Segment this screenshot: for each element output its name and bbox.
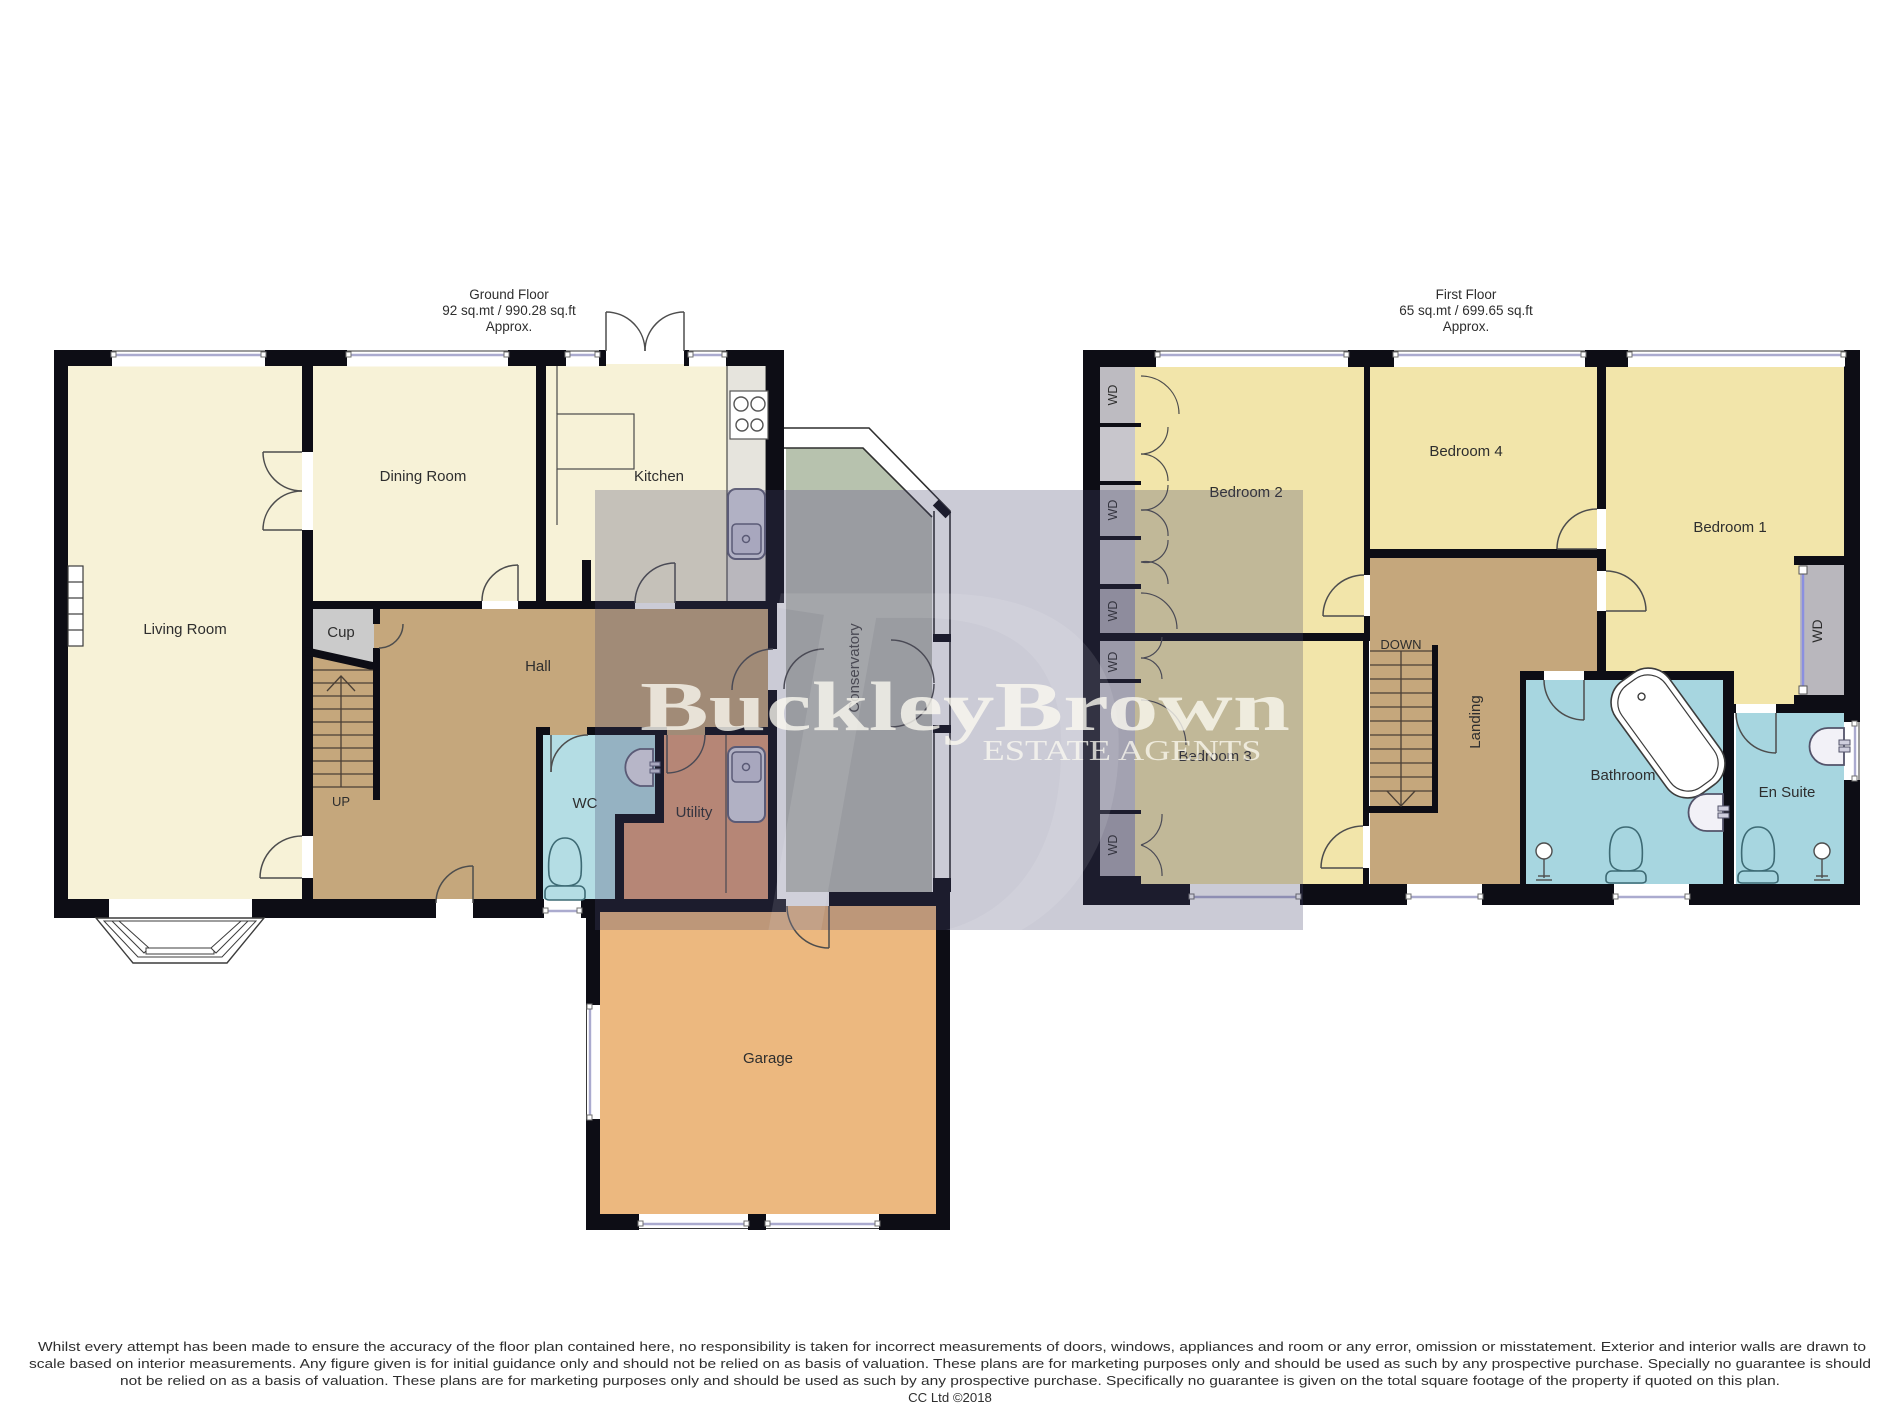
svg-text:Dining Room: Dining Room: [380, 468, 467, 485]
svg-text:Garage: Garage: [743, 1050, 793, 1067]
svg-text:First Floor: First Floor: [1436, 287, 1497, 302]
svg-text:ESTATE AGENTS: ESTATE AGENTS: [983, 736, 1262, 767]
svg-text:Bathroom: Bathroom: [1590, 767, 1655, 784]
svg-text:Whilst every attempt has been: Whilst every attempt has been made to en…: [38, 1339, 1866, 1354]
svg-text:BuckleyBrown: BuckleyBrown: [640, 669, 1290, 746]
svg-text:WC: WC: [573, 795, 598, 812]
svg-text:not be relied on as a basis of: not be relied on as a basis of valuation…: [120, 1373, 1780, 1388]
svg-text:UP: UP: [332, 794, 350, 809]
svg-text:Landing: Landing: [1467, 695, 1484, 748]
svg-text:Cup: Cup: [327, 624, 355, 641]
svg-text:CC Ltd ©2018: CC Ltd ©2018: [908, 1390, 992, 1405]
svg-text:WD: WD: [1106, 385, 1120, 406]
svg-text:92 sq.mt / 990.28 sq.ft: 92 sq.mt / 990.28 sq.ft: [442, 303, 576, 318]
svg-text:Approx.: Approx.: [1443, 319, 1490, 334]
svg-text:Bedroom 1: Bedroom 1: [1693, 519, 1766, 536]
svg-text:Living Room: Living Room: [143, 621, 226, 638]
svg-text:scale based on interior measur: scale based on interior measurements. An…: [29, 1356, 1871, 1371]
svg-text:65 sq.mt / 699.65 sq.ft: 65 sq.mt / 699.65 sq.ft: [1399, 303, 1533, 318]
svg-text:Hall: Hall: [525, 658, 551, 675]
svg-text:DOWN: DOWN: [1380, 637, 1421, 652]
svg-text:WD: WD: [1809, 619, 1825, 642]
svg-text:Ground Floor: Ground Floor: [469, 287, 549, 302]
svg-text:Bedroom 4: Bedroom 4: [1429, 443, 1502, 460]
svg-text:Approx.: Approx.: [486, 319, 533, 334]
svg-text:En Suite: En Suite: [1759, 784, 1816, 801]
svg-text:Kitchen: Kitchen: [634, 468, 684, 485]
